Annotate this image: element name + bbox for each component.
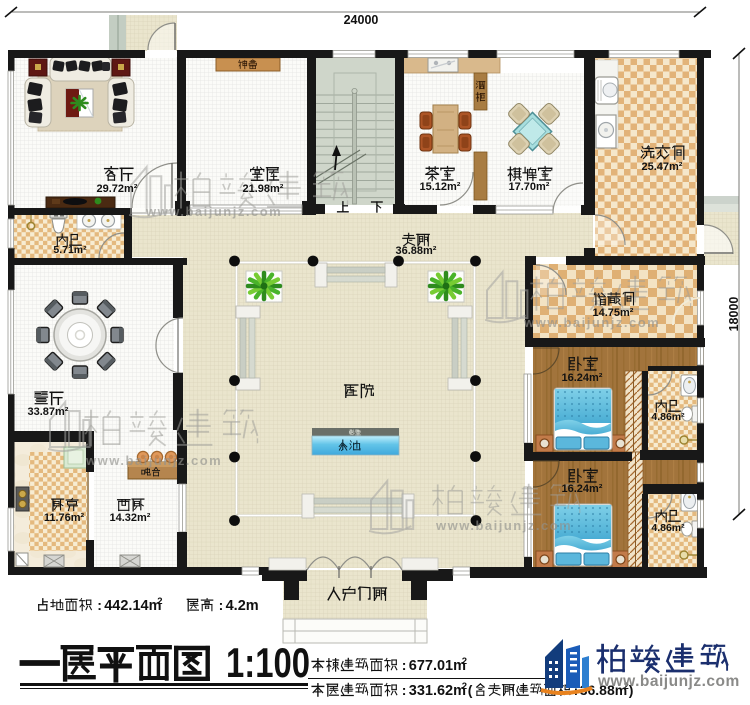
svg-text:33.87m²: 33.87m² <box>28 406 69 418</box>
svg-text:21.98m²: 21.98m² <box>243 183 284 195</box>
svg-text:4.86m²: 4.86m² <box>651 411 685 423</box>
svg-text:36.88m²: 36.88m² <box>396 245 437 257</box>
svg-text::: : <box>97 597 102 613</box>
svg-text:14.32m²: 14.32m² <box>110 512 151 524</box>
svg-text:25.47m²: 25.47m² <box>642 161 683 173</box>
svg-text:www.baijunjz.com: www.baijunjz.com <box>597 673 740 690</box>
svg-text::: : <box>219 597 224 613</box>
svg-text:2: 2 <box>462 656 467 667</box>
svg-text:11.76m²: 11.76m² <box>44 512 85 524</box>
svg-text:29.72m²: 29.72m² <box>97 183 138 195</box>
svg-text:5.71m²: 5.71m² <box>53 244 87 256</box>
svg-text:442.14m: 442.14m <box>104 598 161 614</box>
svg-text:14.75m²: 14.75m² <box>593 307 634 319</box>
svg-text::: : <box>402 682 407 698</box>
svg-text:2: 2 <box>157 596 162 607</box>
svg-text:www.baijunjz.com: www.baijunjz.com <box>145 204 282 219</box>
svg-text:18000: 18000 <box>727 297 741 332</box>
svg-text:16.24m²: 16.24m² <box>562 483 603 495</box>
svg-text:2: 2 <box>462 681 467 692</box>
svg-text:4.86m²: 4.86m² <box>651 522 685 534</box>
svg-text:677.01m: 677.01m <box>409 658 466 674</box>
svg-text:17.70m²: 17.70m² <box>509 181 550 193</box>
svg-text:24000: 24000 <box>344 13 379 27</box>
svg-text:16.24m²: 16.24m² <box>562 372 603 384</box>
svg-text:www.baijunjz.com: www.baijunjz.com <box>85 453 222 468</box>
svg-text:15.12m²: 15.12m² <box>420 181 461 193</box>
svg-text::: : <box>402 657 407 673</box>
svg-text:www.baijunjz.com: www.baijunjz.com <box>435 518 572 533</box>
svg-text:(: ( <box>468 682 473 698</box>
svg-text:1:100: 1:100 <box>226 639 310 686</box>
svg-text:331.62m: 331.62m <box>409 683 466 699</box>
svg-text:4.2m: 4.2m <box>226 598 259 614</box>
